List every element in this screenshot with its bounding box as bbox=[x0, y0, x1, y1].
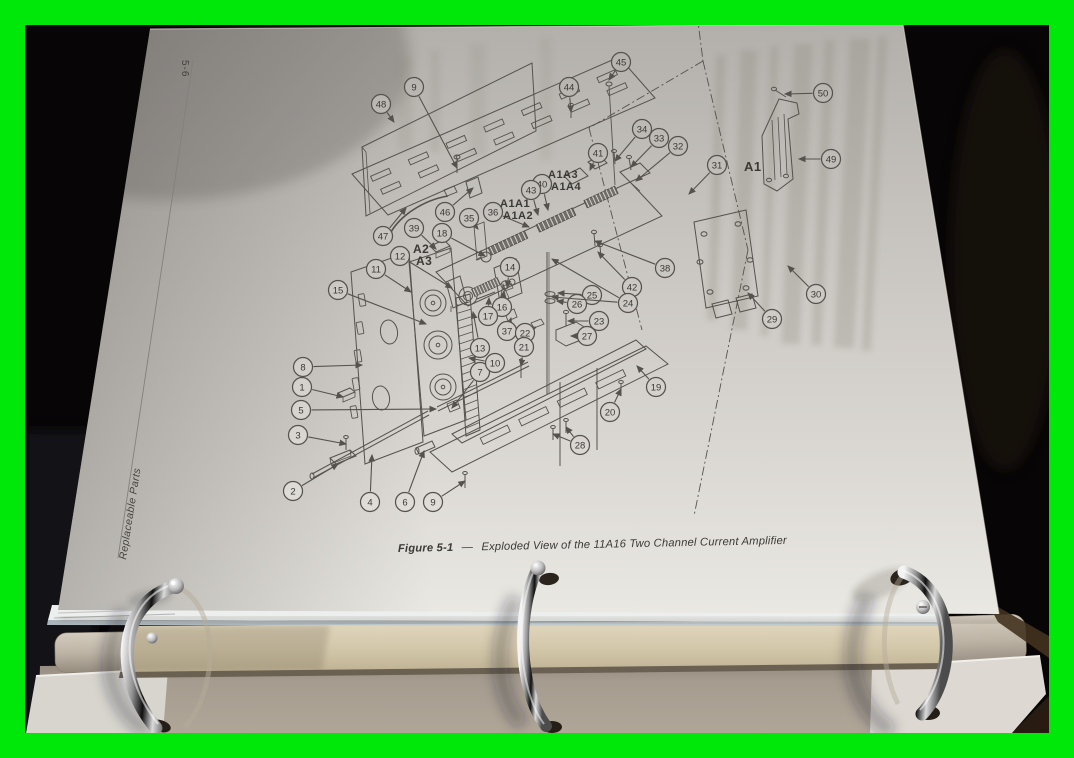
callout-number: 43 bbox=[526, 185, 537, 196]
callout-number: 19 bbox=[651, 382, 662, 393]
background-shadow bbox=[950, 50, 1060, 470]
callout-number: 8 bbox=[300, 362, 305, 373]
callout-number: 45 bbox=[616, 57, 627, 68]
callout-number: 3 bbox=[295, 430, 300, 441]
assembly-label: A1A2 bbox=[503, 210, 533, 222]
callout-number: 24 bbox=[623, 298, 634, 309]
assembly-label: A1A4 bbox=[551, 181, 582, 193]
callout-number: 6 bbox=[402, 497, 407, 508]
photo-of-manual-page: 5-6 Replaceable Parts bbox=[0, 0, 1074, 758]
callout-number: 48 bbox=[376, 99, 387, 110]
scene-svg: 5-6 Replaceable Parts bbox=[0, 0, 1074, 758]
callout-number: 36 bbox=[488, 207, 499, 218]
callout-number: 4 bbox=[367, 497, 372, 508]
callout-number: 26 bbox=[572, 299, 583, 310]
assembly-label: A1A3 bbox=[548, 169, 578, 181]
callout-number: 2 bbox=[290, 486, 295, 497]
stack-shadow-left bbox=[120, 625, 330, 672]
callout-number: 1 bbox=[299, 382, 304, 393]
callout-number: 46 bbox=[440, 207, 451, 218]
callout-number: 29 bbox=[767, 314, 778, 325]
callout-number: 17 bbox=[483, 311, 494, 322]
callout-number: 10 bbox=[490, 358, 501, 369]
callout-number: 41 bbox=[593, 148, 604, 159]
callout-number: 31 bbox=[712, 160, 723, 171]
callout-number: 39 bbox=[409, 223, 420, 234]
callout-number: 21 bbox=[519, 342, 530, 353]
callout-number: 44 bbox=[564, 82, 575, 93]
callout-number: 32 bbox=[673, 141, 684, 152]
callout-number: 12 bbox=[395, 251, 406, 262]
callout-number: 33 bbox=[654, 133, 665, 144]
callout-number: 9 bbox=[430, 497, 435, 508]
callout-number: 18 bbox=[437, 228, 448, 239]
callout-number: 42 bbox=[627, 282, 638, 293]
callout-number: 23 bbox=[594, 316, 605, 327]
callout-number: 34 bbox=[637, 124, 648, 135]
binder-rivet bbox=[147, 633, 158, 644]
callout-number: 49 bbox=[826, 154, 837, 165]
callout-number: 7 bbox=[477, 367, 482, 378]
callout-number: 14 bbox=[505, 262, 516, 273]
assembly-label: A3 bbox=[416, 254, 432, 268]
callout-number: 28 bbox=[575, 440, 586, 451]
callout-leader bbox=[785, 93, 813, 94]
callout-number: 15 bbox=[333, 285, 344, 296]
assembly-label: A1 bbox=[744, 159, 762, 174]
callout-number: 38 bbox=[660, 263, 671, 274]
callout-number: 5 bbox=[298, 405, 303, 416]
assembly-label: A1A1 bbox=[500, 198, 530, 210]
page-number: 5-6 bbox=[179, 60, 190, 77]
callout-number: 9 bbox=[411, 82, 416, 93]
callout-number: 30 bbox=[811, 289, 822, 300]
callout-number: 47 bbox=[378, 231, 389, 242]
callout-number: 20 bbox=[605, 407, 616, 418]
callout-number: 16 bbox=[497, 302, 508, 313]
figure-caption-separator: — bbox=[461, 541, 474, 553]
callout-number: 13 bbox=[475, 343, 486, 354]
figure-caption-label: Figure 5-1 bbox=[398, 542, 454, 555]
callout-leader bbox=[503, 291, 504, 297]
manual-page: 5-6 Replaceable Parts bbox=[0, 0, 1020, 625]
callout-number: 50 bbox=[818, 88, 829, 99]
callout-number: 35 bbox=[464, 213, 475, 224]
callout-number: 37 bbox=[502, 326, 513, 337]
callout-number: 27 bbox=[582, 331, 593, 342]
callout-number: 11 bbox=[371, 264, 381, 275]
